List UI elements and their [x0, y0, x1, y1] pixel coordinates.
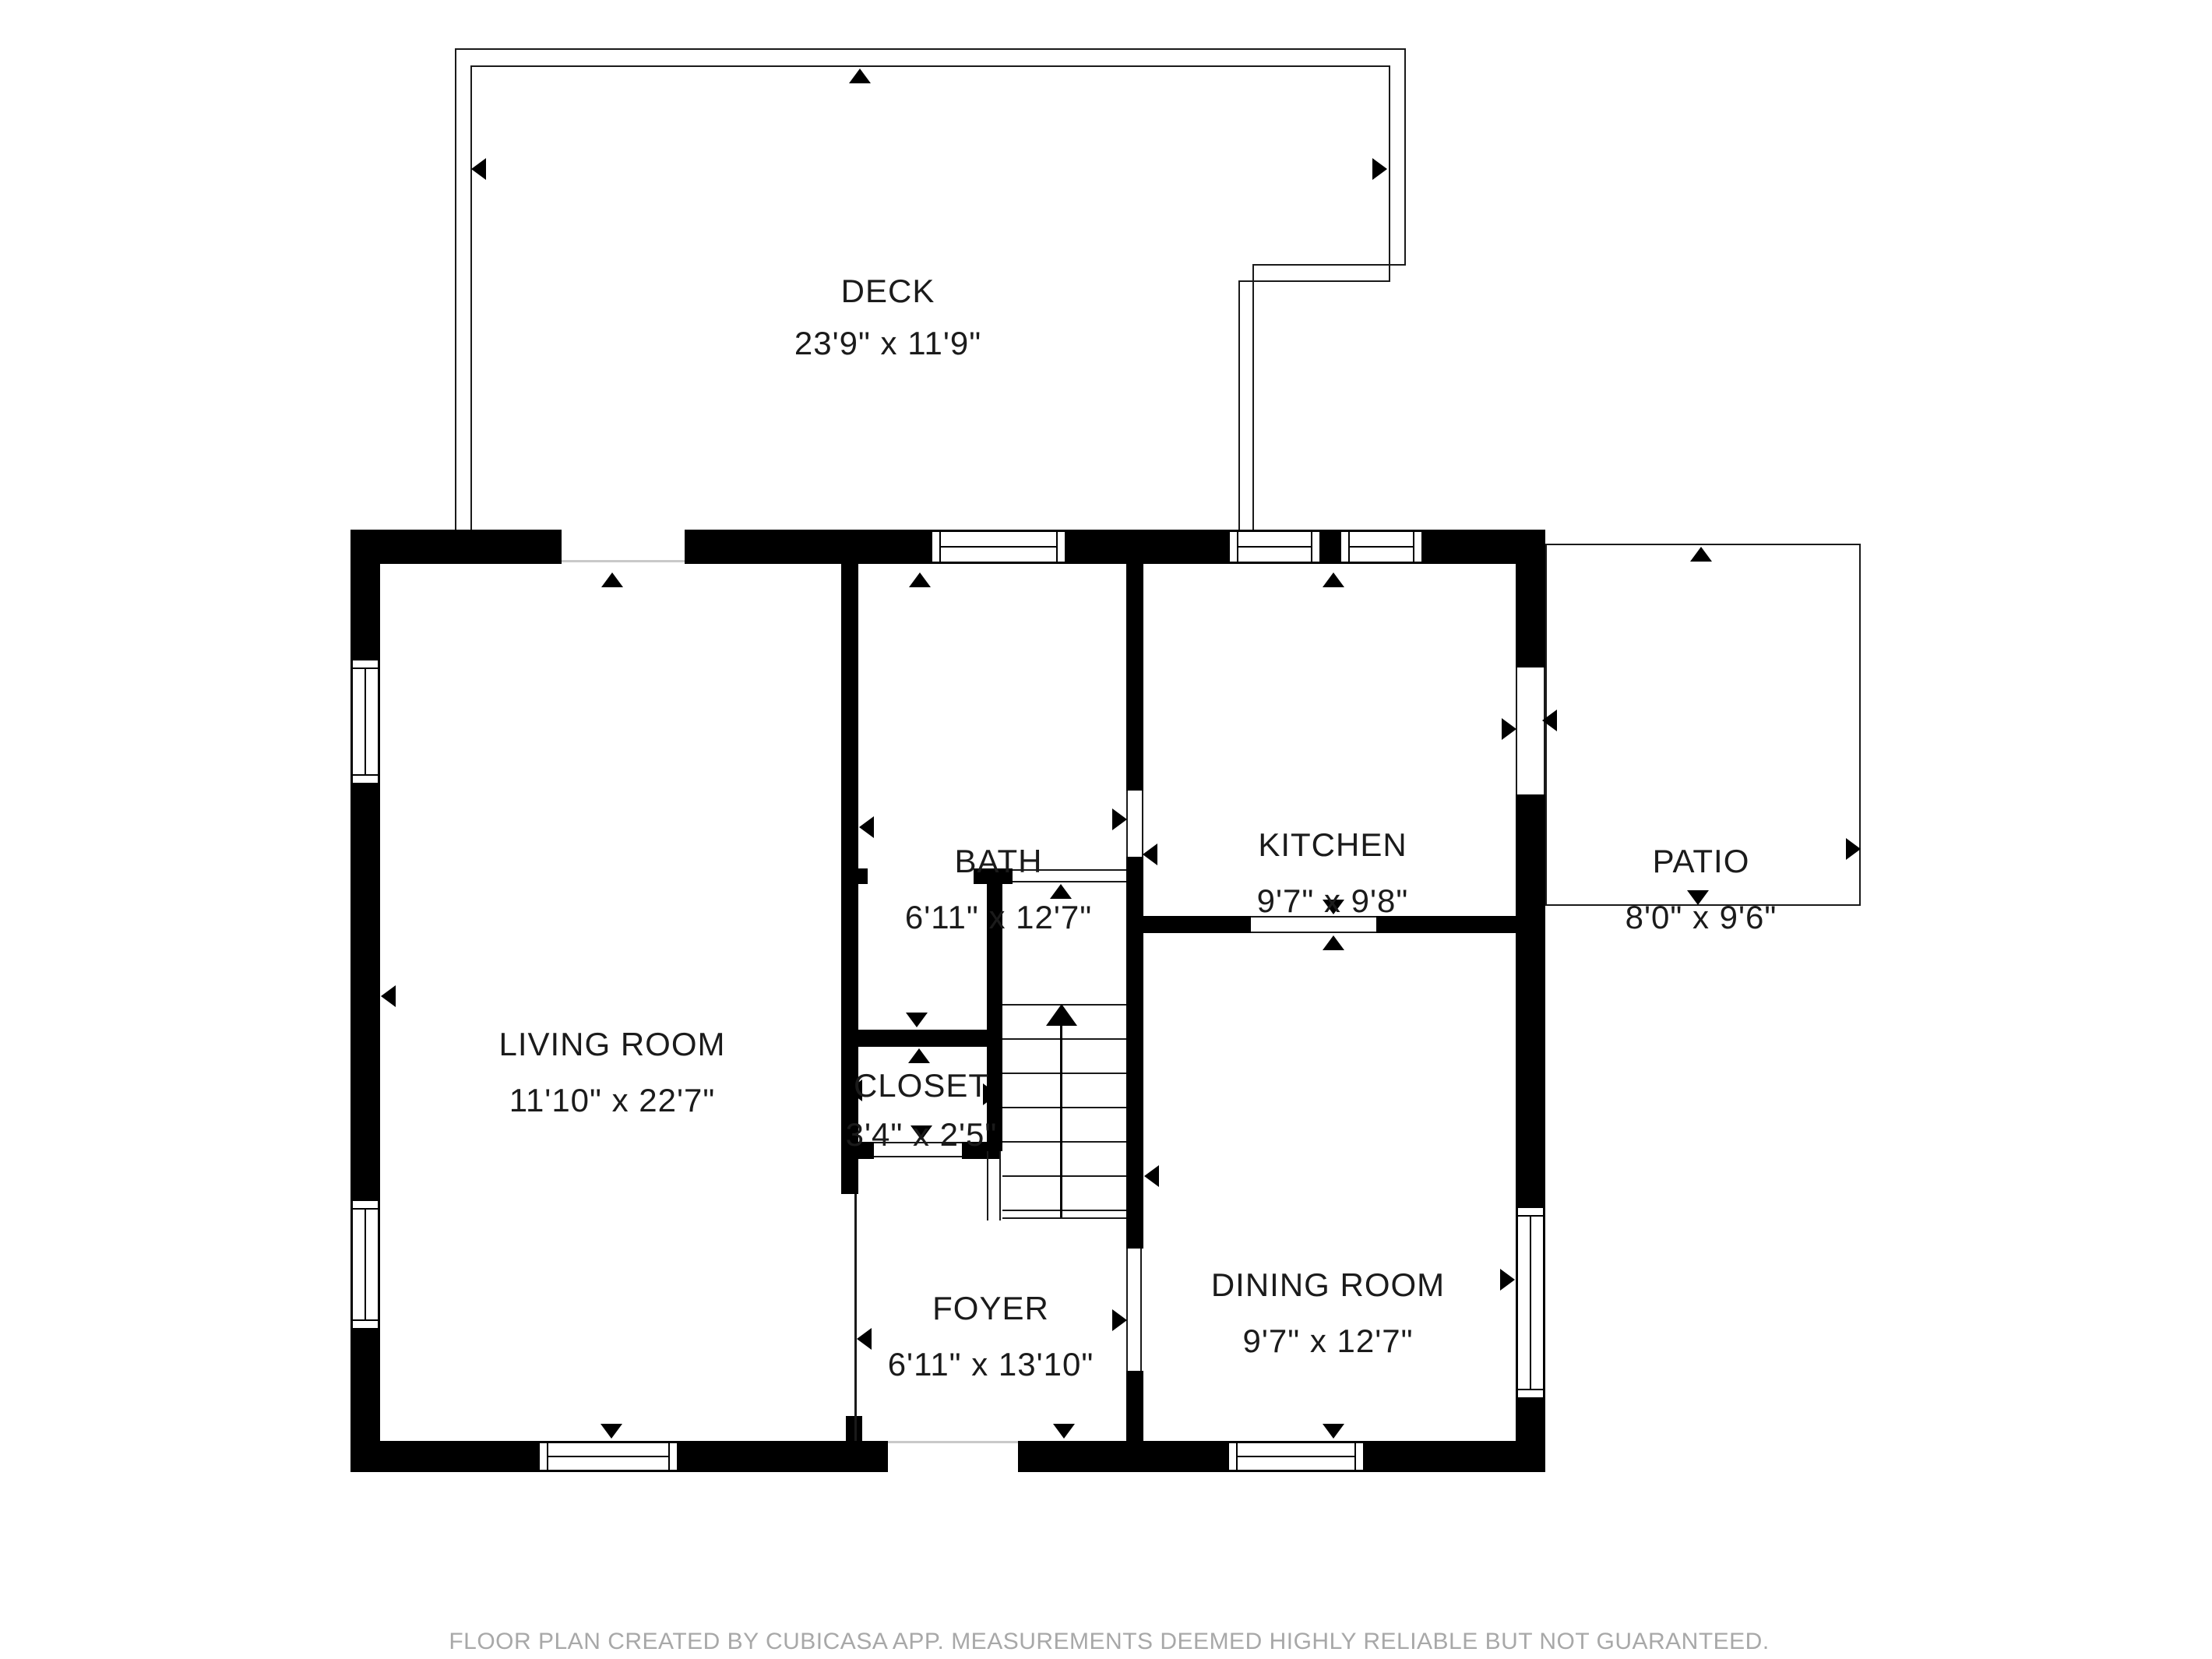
window-sash-line: [1348, 546, 1414, 548]
direction-marker: [471, 158, 486, 180]
stair-tread: [1002, 1038, 1126, 1040]
direction-marker: [1143, 844, 1157, 865]
floor-plan-canvas: DECK23'9" x 11'9"BATH6'11" x 12'7"KITCHE…: [0, 0, 2212, 1659]
window-end-cap: [352, 1208, 379, 1210]
direction-marker: [1144, 1165, 1159, 1187]
direction-marker: [1053, 1424, 1075, 1439]
room-label-bath: BATH: [955, 843, 1043, 880]
direction-marker: [1372, 158, 1387, 180]
direction-marker: [842, 1022, 857, 1044]
stair-tread: [1002, 1141, 1126, 1143]
plan-line: [470, 65, 472, 530]
room-dims-dining-room: 9'7" x 12'7": [1243, 1323, 1414, 1360]
plan-line: [455, 48, 456, 530]
direction-marker: [1500, 1269, 1515, 1291]
window-end-cap: [1237, 531, 1238, 562]
window-end-cap: [1354, 1442, 1356, 1471]
plan-line: [1238, 280, 1240, 530]
window-sash-line: [1236, 1456, 1356, 1457]
direction-marker: [849, 69, 871, 83]
wall-segment: [350, 530, 562, 564]
plan-line: [999, 1151, 1001, 1220]
plan-line: [987, 1151, 988, 1220]
direction-marker: [601, 572, 623, 587]
direction-marker: [1112, 1309, 1127, 1331]
plan-line: [1238, 280, 1390, 282]
stair-tread: [1002, 1175, 1126, 1177]
direction-marker: [1323, 572, 1344, 587]
window-end-cap: [352, 667, 379, 669]
window-sash-line: [939, 546, 1058, 548]
stairs-up-arrow-shaft: [1060, 1023, 1062, 1217]
window-end-cap: [668, 1442, 670, 1471]
plan-line: [1389, 65, 1390, 282]
window-end-cap: [352, 774, 379, 776]
window-end-cap: [1056, 531, 1058, 562]
direction-marker: [381, 985, 396, 1007]
room-dims-patio: 8'0" x 9'6": [1626, 899, 1777, 936]
wall-segment: [1126, 564, 1143, 791]
window-end-cap: [1236, 1442, 1238, 1471]
wall-segment: [858, 868, 868, 884]
plan-line: [874, 1156, 962, 1157]
direction-marker: [1323, 935, 1344, 950]
wall-segment: [1322, 530, 1339, 564]
window-end-cap: [547, 1442, 548, 1471]
wall-segment: [1516, 794, 1545, 1206]
direction-marker: [1050, 884, 1072, 899]
room-label-kitchen: KITCHEN: [1258, 826, 1407, 864]
room-label-patio: PATIO: [1653, 843, 1750, 880]
direction-marker: [1502, 718, 1516, 740]
room-dims-living-room: 11'10" x 22'7": [509, 1082, 716, 1119]
plan-line: [1545, 544, 1861, 545]
stairs-up-arrow-head: [1046, 1004, 1077, 1026]
wall-segment: [1018, 1441, 1139, 1472]
window-sash-line: [1530, 1215, 1531, 1390]
wall-segment: [841, 1030, 1001, 1047]
direction-marker: [859, 816, 874, 838]
plan-line: [470, 65, 1390, 67]
window-end-cap: [1517, 1389, 1544, 1390]
plan-line: [1002, 1217, 1126, 1219]
wall-segment: [1067, 530, 1228, 564]
room-dims-deck: 23'9" x 11'9": [794, 325, 981, 362]
wall-segment: [1126, 1371, 1143, 1441]
direction-marker: [857, 1328, 872, 1350]
plan-line: [888, 1441, 1018, 1443]
stair-tread: [1002, 1107, 1126, 1108]
window-sash-line: [1237, 546, 1312, 548]
room-label-deck: DECK: [841, 273, 935, 310]
room-dims-kitchen: 9'7" x 9'8": [1257, 882, 1409, 920]
direction-marker: [906, 1013, 928, 1027]
room-label-dining-room: DINING ROOM: [1211, 1266, 1445, 1304]
disclaimer-text: FLOOR PLAN CREATED BY CUBICASA APP. MEAS…: [449, 1629, 1769, 1655]
plan-line: [1140, 1249, 1142, 1371]
direction-marker: [1112, 808, 1127, 830]
window-end-cap: [1348, 531, 1350, 562]
stair-tread: [1002, 1073, 1126, 1074]
plan-line: [562, 560, 685, 562]
plan-line: [1252, 264, 1406, 266]
wall-segment: [685, 530, 930, 564]
wall-segment: [1516, 530, 1545, 667]
window-end-cap: [1517, 1215, 1544, 1217]
window-sash-line: [365, 1208, 366, 1321]
direction-marker: [1542, 710, 1557, 731]
plan-line: [1251, 932, 1376, 933]
window-sash-line: [547, 1456, 670, 1457]
window-sash-line: [365, 667, 366, 776]
window-end-cap: [939, 531, 941, 562]
room-dims-foyer: 6'11" x 13'10": [888, 1346, 1094, 1383]
plan-line: [854, 1194, 857, 1441]
plan-line: [1404, 48, 1406, 266]
wall-segment: [350, 1441, 537, 1472]
wall-segment: [1126, 916, 1251, 933]
room-dims-bath: 6'11" x 12'7": [905, 899, 1092, 936]
wall-segment: [350, 785, 380, 1199]
window-end-cap: [352, 1319, 379, 1321]
room-label-living-room: LIVING ROOM: [498, 1026, 725, 1063]
wall-segment: [679, 1441, 888, 1472]
direction-marker: [909, 572, 931, 587]
window-end-cap: [1311, 531, 1312, 562]
stair-tread: [1002, 1210, 1126, 1211]
direction-marker: [1323, 1424, 1344, 1439]
room-label-foyer: FOYER: [932, 1290, 1049, 1327]
direction-marker: [1690, 547, 1712, 562]
wall-segment: [1139, 1441, 1227, 1472]
direction-marker: [1846, 838, 1861, 860]
room-label-closet: CLOSET: [854, 1067, 989, 1104]
room-dims-closet: 3'4" x 2'5": [846, 1116, 998, 1154]
direction-marker: [601, 1424, 622, 1439]
window-end-cap: [1413, 531, 1414, 562]
plan-line: [455, 48, 1406, 50]
wall-segment: [1365, 1441, 1545, 1472]
direction-marker: [908, 1048, 930, 1063]
plan-line: [1252, 264, 1254, 530]
plan-line: [1013, 881, 1126, 882]
